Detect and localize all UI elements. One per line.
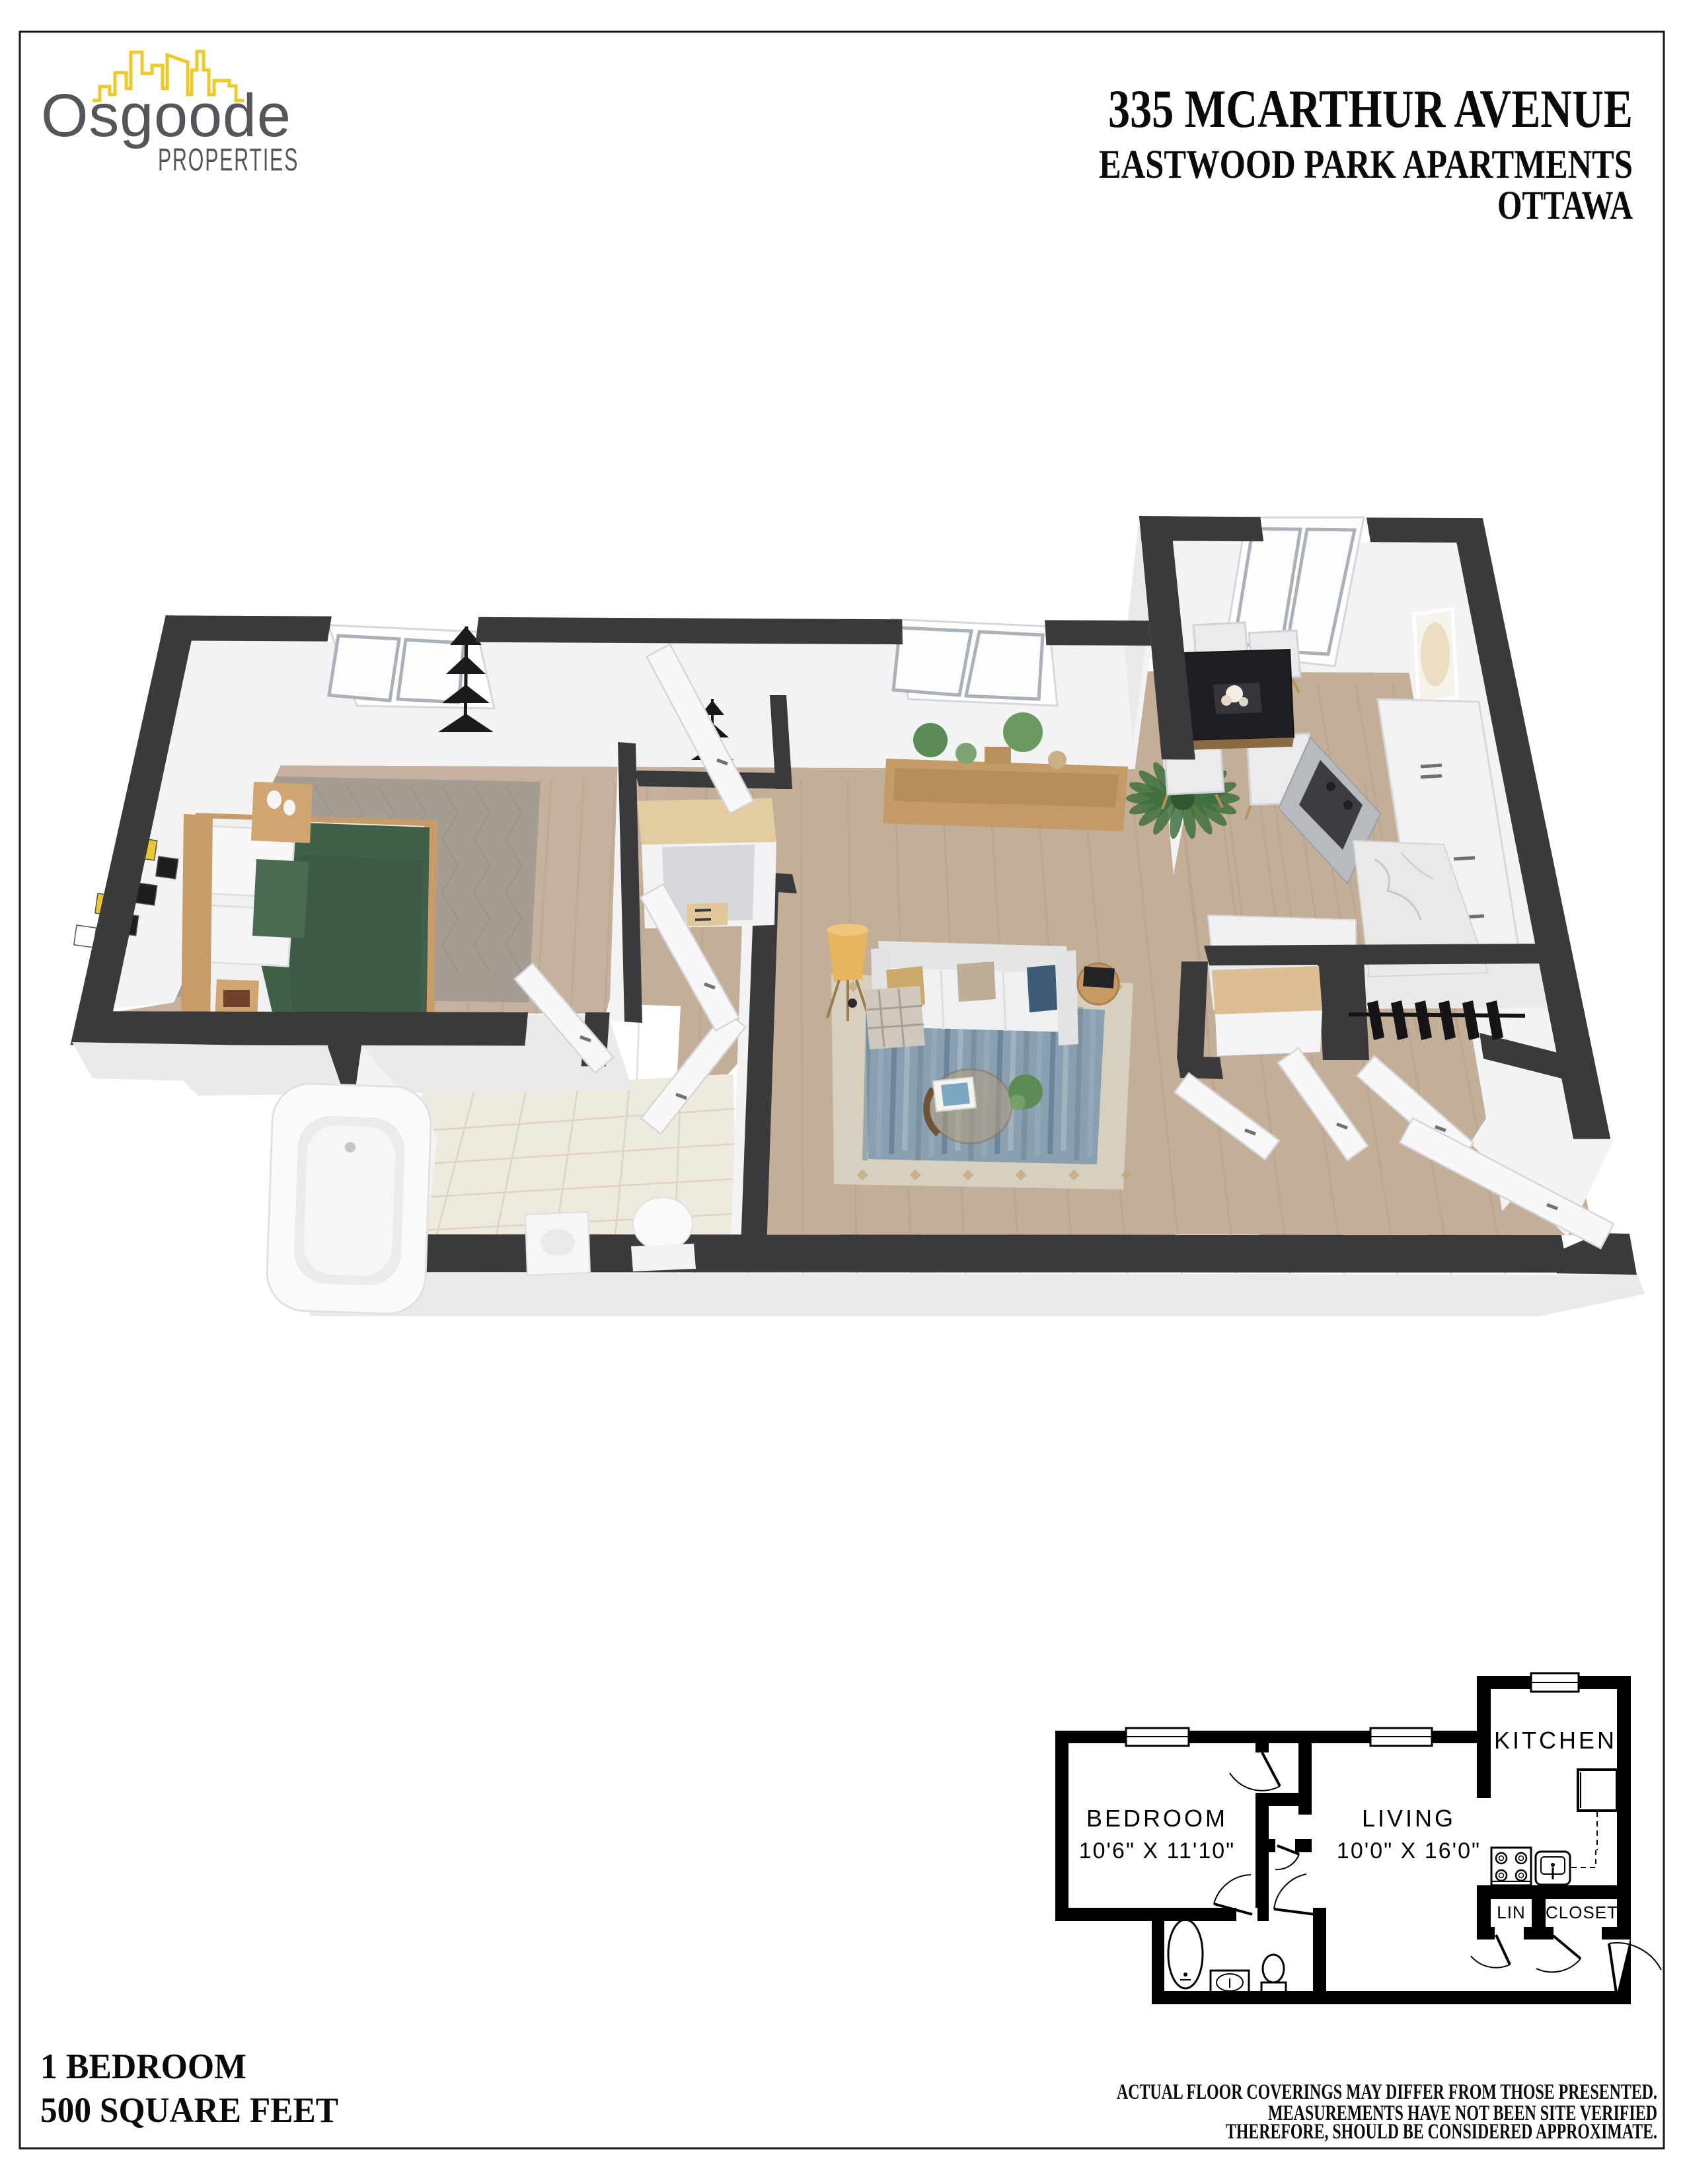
svg-text:1 BEDROOM: 1 BEDROOM	[40, 2047, 246, 2086]
svg-text:BEDROOM: BEDROOM	[1086, 1805, 1228, 1832]
svg-text:KITCHEN: KITCHEN	[1494, 1727, 1617, 1754]
svg-text:335 MCARTHUR AVENUE: 335 MCARTHUR AVENUE	[1108, 79, 1633, 139]
svg-text:PROPERTIES: PROPERTIES	[158, 143, 299, 178]
svg-text:THEREFORE, SHOULD BE CONSIDERE: THEREFORE, SHOULD BE CONSIDERED APPROXIM…	[1226, 2120, 1657, 2144]
svg-text:EASTWOOD PARK APARTMENTS: EASTWOOD PARK APARTMENTS	[1099, 143, 1633, 187]
svg-text:10'0" X 16'0": 10'0" X 16'0"	[1337, 1838, 1481, 1864]
svg-text:LIVING: LIVING	[1362, 1805, 1456, 1832]
svg-text:CLOSET: CLOSET	[1546, 1902, 1618, 1922]
svg-text:500 SQUARE FEET: 500 SQUARE FEET	[40, 2090, 338, 2130]
svg-text:OTTAWA: OTTAWA	[1497, 184, 1633, 228]
svg-text:Osgoode: Osgoode	[41, 82, 291, 149]
svg-text:10'6" X 11'10": 10'6" X 11'10"	[1079, 1838, 1236, 1864]
svg-text:LIN: LIN	[1497, 1902, 1525, 1922]
svg-text:ACTUAL FLOOR COVERINGS MAY DIF: ACTUAL FLOOR COVERINGS MAY DIFFER FROM T…	[1117, 2080, 1657, 2104]
